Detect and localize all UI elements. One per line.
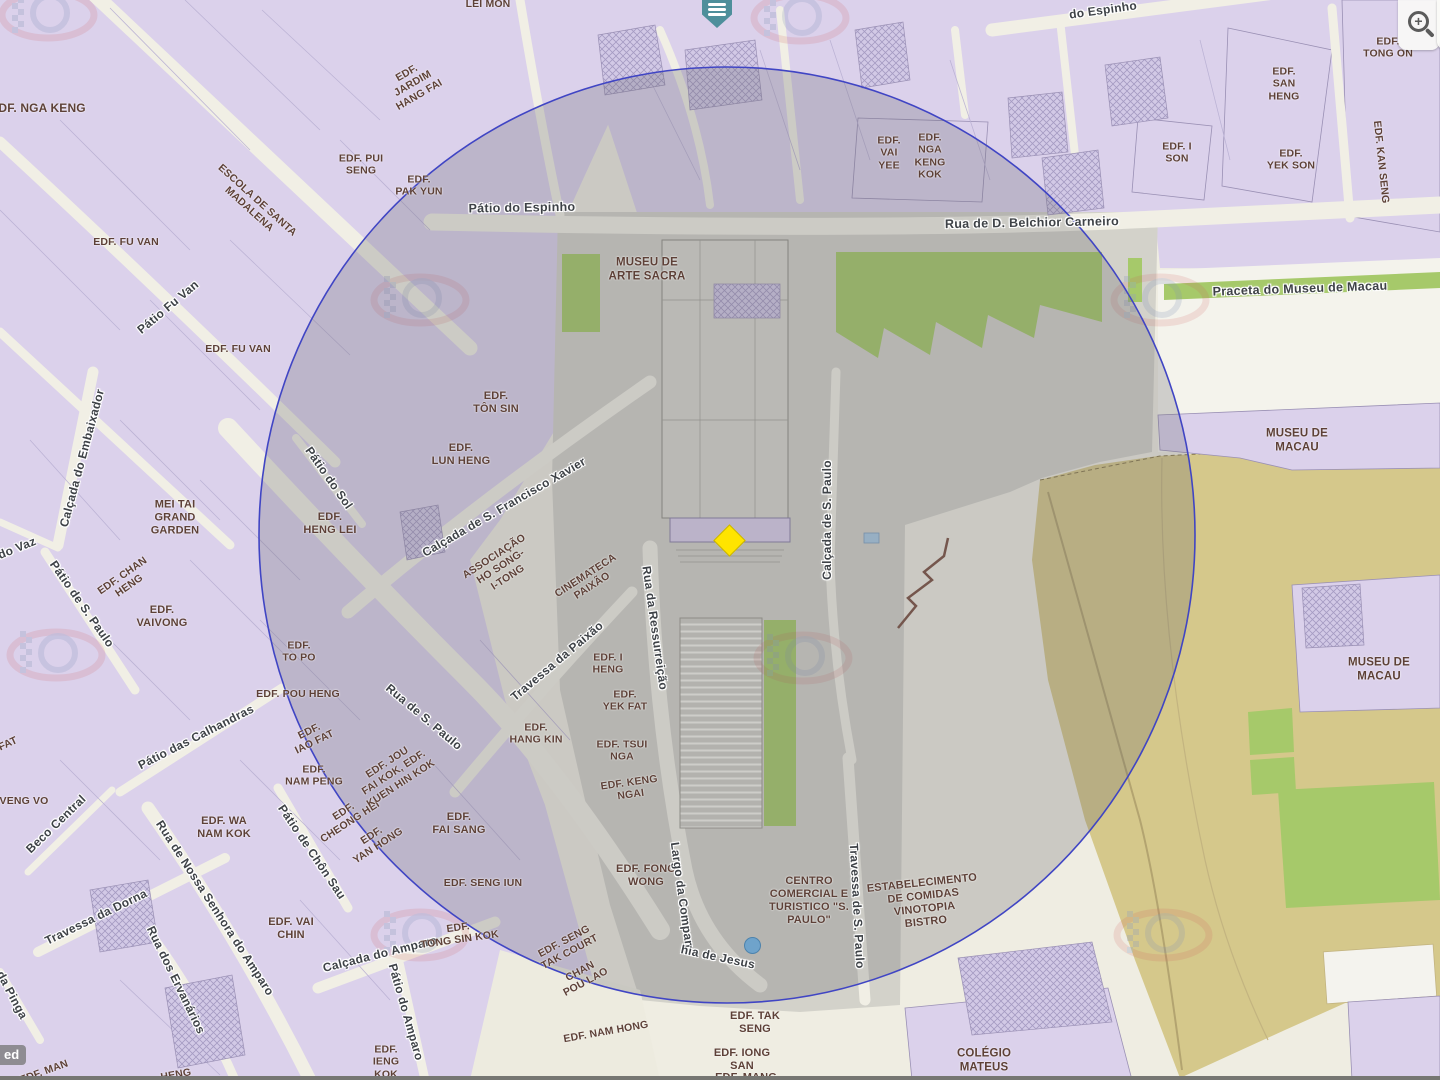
attribution-chip: ed <box>0 1045 26 1065</box>
zoom-in-button[interactable]: + <box>1398 0 1440 50</box>
map-canvas[interactable]: LEI MONEDF. NGA KENGEDF. JARDIM HANG FAI… <box>0 0 1440 1080</box>
blue-dot-marker[interactable] <box>744 937 761 954</box>
pin-menu-lines-icon <box>708 3 726 18</box>
magnifier-plus-icon: + <box>1408 11 1429 32</box>
bottom-panel-edge <box>0 1076 1440 1080</box>
